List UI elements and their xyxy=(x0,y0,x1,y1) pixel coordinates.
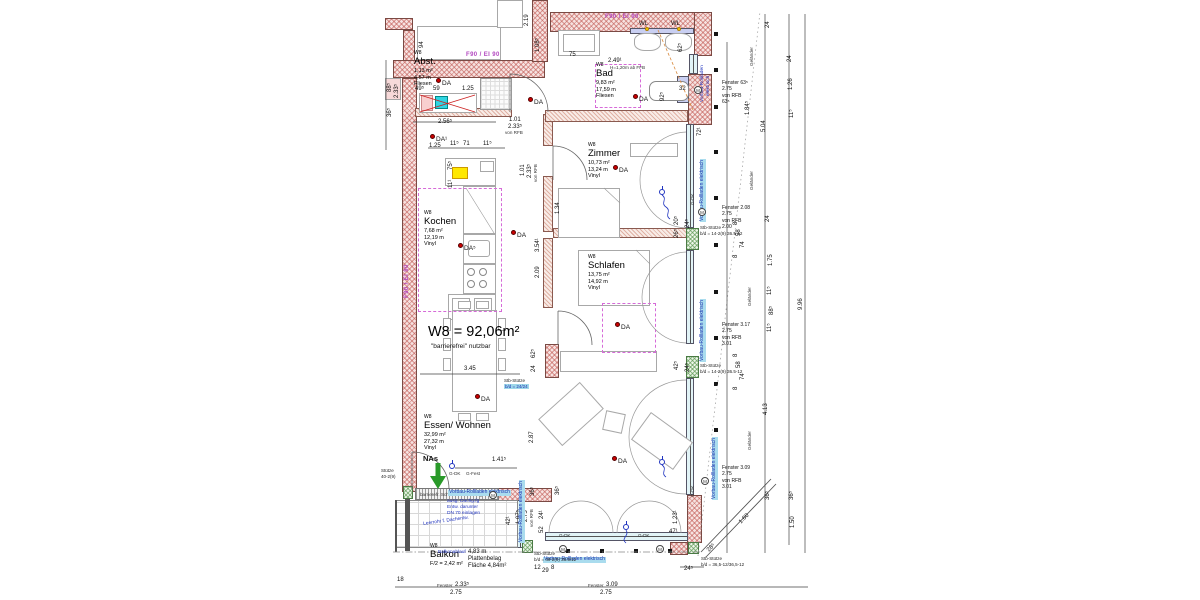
room-label: W8 Kochen 7,68 m² 12,19 m Vinyl xyxy=(424,210,456,248)
room-name: Abst. xyxy=(414,56,436,67)
motor-marker-icon: M xyxy=(698,208,706,216)
room-name: Schlafen xyxy=(588,260,625,271)
column-note: Stütze40-2(9) xyxy=(381,468,396,479)
dimension-label: 1.01 xyxy=(520,164,526,176)
cable-squiggles xyxy=(624,195,670,543)
dimension-label: 24⁵ xyxy=(684,566,693,572)
room-perimeter: 17,59 m xyxy=(596,87,616,94)
ceiling-outlet-marker: DA¹ xyxy=(430,134,447,143)
dimension-label: Fläche 4,84m² xyxy=(468,563,506,569)
window-dimension-block: Fenster 3.092.75von RFB3.01 xyxy=(722,465,750,490)
column-note: Stb-Stützeb/d = 14-2(9) 36.5-12 xyxy=(700,225,742,236)
dimension-label: Geländer xyxy=(750,171,755,190)
ceiling-outlet-marker: DA xyxy=(511,230,526,239)
dimension-label: 2.56⁵ xyxy=(438,119,452,125)
fire-rating-label: F90 / EI 90 xyxy=(605,14,639,20)
dimension-label: 24⁵ xyxy=(685,219,691,228)
dimension-label: von RFB xyxy=(534,164,539,182)
dimension-label: Geländer xyxy=(748,431,753,450)
dimension-label: Fenster xyxy=(437,584,453,589)
dimension-label: 72¹ xyxy=(697,127,703,136)
dimension-label: 74 xyxy=(740,241,746,248)
room-floor-finish: Vinyl xyxy=(424,445,491,452)
ceiling-outlet-marker: DA xyxy=(612,456,627,465)
ceiling-outlet-marker: DA xyxy=(475,394,490,403)
room-area: 13,75 m² xyxy=(588,272,625,279)
da-dot-icon xyxy=(436,78,441,83)
column-note-lines: Stb-Stützeb/d = 14-2(9) 36.5-12 xyxy=(700,363,742,374)
column-note-lines: Stb-Stützeb/d = 36,5-12/36,5-12 xyxy=(701,556,744,567)
utility-note: Vorbau-Rollladen xyxy=(700,65,706,102)
column-note: Stb-Stützeb/d = 14-2(9) 36.5-12 xyxy=(700,363,742,374)
ceiling-outlet-marker: DA xyxy=(436,78,451,87)
column-note-lines: Stb-Stützeb/d = 49-2(9) 36.5/12 xyxy=(534,551,576,562)
dimension-label: 29 xyxy=(542,568,549,574)
dimension-label: 52 xyxy=(539,526,545,533)
dimension-label: 20⁵ xyxy=(674,216,680,225)
electrical-outlet-icon xyxy=(659,459,665,465)
dimension-label: 11⁵ xyxy=(483,141,492,147)
room-area: 1,13 m² xyxy=(414,68,436,75)
dimension-label: 4.13 xyxy=(763,403,769,415)
dimension-label: 3.09 xyxy=(606,582,618,588)
room-area: 32,99 m² xyxy=(424,432,491,439)
da-label: DA xyxy=(618,458,627,465)
ceiling-outlet-marker: DA xyxy=(613,165,628,174)
utility-note: Balkonablauf xyxy=(438,550,466,556)
bed-fold-lines xyxy=(604,188,650,264)
floor-plan-canvas: W8 = 92,06m² "barrierefrei" nutzbar W8 A… xyxy=(0,0,1200,600)
dimension-label: 2.75 xyxy=(600,590,612,596)
da-label: DA xyxy=(639,96,648,103)
column-note-lines: Stütze40-2(9) xyxy=(381,468,396,479)
utility-note: Entw. darunter xyxy=(447,505,478,511)
dimension-label: G-DK xyxy=(449,472,460,477)
marker-letter: M xyxy=(658,547,662,552)
dimension-label: G-DK xyxy=(691,194,696,205)
dimension-label: 62⁵ xyxy=(531,349,537,358)
motor-marker-icon: M xyxy=(694,86,702,94)
dimension-label: 1.25 xyxy=(429,143,441,149)
da-label: DA¹ xyxy=(436,136,447,143)
room-label: W8 Zimmer 10,73 m² 13,24 m Vinyl xyxy=(588,142,620,180)
dimension-label: 3.54¹ xyxy=(535,238,541,252)
dimension-label: 2.09 xyxy=(535,266,541,278)
dimension-label: Fenster xyxy=(588,584,604,589)
dimension-label: 71 xyxy=(463,141,470,147)
dimension-label: 1.25 xyxy=(462,86,474,92)
room-floor-finish: Vinyl xyxy=(588,173,620,180)
utility-note: elektrisch xyxy=(706,76,712,96)
window-swings xyxy=(549,132,686,533)
dimension-label: 2.87 xyxy=(529,431,535,443)
room-name: Essen/ Wohnen xyxy=(424,420,491,431)
da-label: DA xyxy=(481,396,490,403)
da-label: DA xyxy=(621,324,630,331)
dimension-label: 24 xyxy=(787,55,793,62)
dimension-label: 18 xyxy=(397,577,404,583)
dimension-label: 88⁵ xyxy=(387,83,393,92)
apartment-subtitle: "barrierefrei" nutzbar xyxy=(431,344,491,351)
electrical-outlet-icon xyxy=(449,463,455,469)
dimension-label: 94 xyxy=(419,41,425,48)
da-label: DA xyxy=(619,167,628,174)
column-note: Stb-Stützeb/d = 49-2(9) 36.5/12 xyxy=(534,551,576,562)
dimension-label: 2.33⁵ xyxy=(455,582,469,588)
marker-letter: M xyxy=(703,479,707,484)
dimension-label: 2.33⁵ xyxy=(394,84,400,98)
dimension-label: G-Fest xyxy=(466,472,480,477)
dimension-label: WL xyxy=(671,21,680,27)
da-dot-icon xyxy=(612,456,617,461)
da-dot-icon xyxy=(458,243,463,248)
fire-rating-label: F90 / EI 90 xyxy=(404,264,410,298)
da-dot-icon xyxy=(430,134,435,139)
dimension-label: 36⁵ xyxy=(789,491,795,500)
window-dimension-block: Fenster 63⁵2.75von RFB63⁵ xyxy=(722,80,748,105)
da-dot-icon xyxy=(475,394,480,399)
motor-marker-icon: M xyxy=(489,491,497,499)
column-note-lines: Stb-Stützeb/d = 14-2(9) 36.5-12 xyxy=(700,225,742,236)
dimension-label: 3.45 xyxy=(464,366,476,372)
dimension-label: 1.34 xyxy=(555,202,561,214)
dimension-label: 92⁵ xyxy=(660,92,666,101)
dimension-label: 1.01 xyxy=(509,117,521,123)
dimension-label: 24 xyxy=(765,21,771,28)
dimension-label: 75 xyxy=(569,52,576,58)
dimension-label: 47¹ xyxy=(669,529,678,535)
dimension-label: Geländer xyxy=(750,47,755,66)
dimension-label: 24¹ xyxy=(539,510,545,519)
entry-arrow xyxy=(430,463,446,489)
room-floor-finish: Vinyl xyxy=(424,241,456,248)
da-label: DA xyxy=(534,99,543,106)
washer-cross xyxy=(420,95,475,112)
da-label: DA xyxy=(517,232,526,239)
dimension-label: 12 xyxy=(534,565,541,571)
room-perimeter: 27,32 m xyxy=(424,439,491,446)
window-dimension-lines: Fenster 63⁵2.75von RFB63⁵ xyxy=(722,80,748,105)
room-area: 9,83 m² xyxy=(596,80,616,87)
da-dot-icon xyxy=(528,97,533,102)
dimension-label: 2.49¹ xyxy=(608,58,622,64)
room-area: 7,68 m² xyxy=(424,228,456,235)
dimension-label: 11⁵ xyxy=(767,286,773,295)
motor-marker-icon: M xyxy=(656,545,664,553)
dimension-label: 11⁵ xyxy=(767,323,773,332)
window-dimension-lines: Fenster 3.092.75von RFB3.01 xyxy=(722,465,750,490)
roller-shutter-note: Vorbau-Rollladen elektrisch xyxy=(700,299,706,362)
dimension-label: 36⁵ xyxy=(765,491,771,500)
dimension-label: von RFB xyxy=(530,509,535,527)
dimension-label: 8 xyxy=(733,255,739,258)
da-label: DA⁵ xyxy=(464,245,476,252)
dimension-label: 24 xyxy=(531,365,537,372)
roller-shutter-note: Vorbau-Rollladen elektrisch xyxy=(519,480,525,543)
dimension-label: NAs xyxy=(423,455,438,463)
ceiling-outlet-marker: DA xyxy=(633,94,648,103)
electrical-outlet-icon xyxy=(659,189,665,195)
dimension-label: 36⁵ xyxy=(555,486,561,495)
dimension-label: 36⁵ xyxy=(387,108,393,117)
dimension-label: 11¹ xyxy=(448,180,454,188)
room-label: W8 Schlafen 13,75 m² 14,92 m Vinyl xyxy=(588,254,625,292)
dimension-label: G-DK xyxy=(691,486,696,497)
ceiling-outlet-marker: DA⁵ xyxy=(458,243,476,252)
dimension-label: 62⁵ xyxy=(678,43,684,52)
room-area: F/2 = 2,42 m² xyxy=(430,561,463,568)
ceiling-outlet-marker: DA xyxy=(528,97,543,106)
room-floor-finish: Vinyl xyxy=(588,285,625,292)
room-name: Zimmer xyxy=(588,148,620,159)
dimension-label: 26⁵ xyxy=(674,229,680,238)
dimension-label: G-DK xyxy=(638,534,649,539)
dimension-label: Plattenbelag xyxy=(468,556,501,562)
dimension-label: 1.08⁵ xyxy=(535,38,541,52)
dimension-label: 24⁵ xyxy=(685,363,691,372)
room-label: W8 Abst. 1,13 m² 4,57 m Fliesen xyxy=(414,50,436,88)
dimension-label: Geländer xyxy=(748,287,753,306)
dimension-label: 4,83 m xyxy=(468,549,486,555)
dimension-label: 42¹ xyxy=(506,516,512,525)
fridge-diagonal xyxy=(466,188,494,233)
dimension-label: 75⁵ xyxy=(448,161,454,170)
dimension-label: 24 xyxy=(765,215,771,222)
window-dimension-block: Fenster 3.172.75von RFB3.01 xyxy=(722,322,750,347)
da-label: DA xyxy=(442,80,451,87)
dimension-label: H=1,20m ab FFB xyxy=(610,66,645,71)
dimension-label: 1.41⁵ xyxy=(492,457,506,463)
dimension-label: 1.26 xyxy=(788,78,794,90)
dimension-label: 1.75 xyxy=(768,254,774,266)
da-dot-icon xyxy=(615,322,620,327)
dimension-label: 8 xyxy=(733,354,739,357)
motor-marker-icon: M xyxy=(559,545,567,553)
dimension-label: G-DK xyxy=(559,534,570,539)
dimension-label: 8 xyxy=(733,387,739,390)
marker-letter: M xyxy=(700,210,704,215)
room-floor-finish: Fliesen xyxy=(596,93,616,100)
dimension-label: 8 xyxy=(551,565,554,571)
da-dot-icon xyxy=(613,165,618,170)
motor-marker-icon: M xyxy=(701,477,709,485)
dimension-label: 11⁵ xyxy=(789,109,795,118)
room-label: W8 Essen/ Wohnen 32,99 m² 27,32 m Vinyl xyxy=(424,414,491,452)
roller-shutter-note: Vorbau-Rollladen elektrisch xyxy=(448,490,511,496)
da-dot-icon xyxy=(511,230,516,235)
dimension-label: 88⁵ xyxy=(769,306,775,315)
dimension-label: 74 xyxy=(740,373,746,380)
dimension-label: 5.04 xyxy=(761,120,767,132)
dimension-label: 1.50 xyxy=(790,516,796,528)
room-perimeter: 4,57 m xyxy=(414,75,436,82)
dimension-label: 32 xyxy=(679,86,686,92)
marker-letter: M xyxy=(696,88,700,93)
marker-letter: M xyxy=(561,547,565,552)
dimension-label: WL xyxy=(639,21,648,27)
column-note: Stb-Stützeb/d = 24/24 xyxy=(504,378,529,389)
dimension-label: 11⁵ xyxy=(450,141,459,147)
utility-note: ausg. Dachg.fg xyxy=(447,499,479,505)
dimension-label: 1.23¹ xyxy=(673,510,679,524)
room-perimeter: 14,92 m xyxy=(588,279,625,286)
dimension-label: 2.75 xyxy=(450,590,462,596)
dimension-label: 9.96 xyxy=(798,298,804,310)
ceiling-outlet-marker: DA xyxy=(615,322,630,331)
column-note: Stb-Stützeb/d = 36,5-12/36,5-12 xyxy=(701,556,744,567)
window-dimension-lines: Fenster 3.172.75von RFB3.01 xyxy=(722,322,750,347)
da-dot-icon xyxy=(633,94,638,99)
dimension-label: 2.19 xyxy=(524,14,530,26)
marker-letter: M xyxy=(491,493,495,498)
dimension-label: von RFB xyxy=(505,131,523,136)
dimension-label: 36⁵ xyxy=(530,487,536,496)
room-perimeter: 12,19 m xyxy=(424,235,456,242)
dimension-label: 49⁵ xyxy=(415,86,424,92)
apartment-title: W8 = 92,06m² xyxy=(428,325,519,340)
electrical-outlet-icon xyxy=(623,524,629,530)
column-note-lines: Stb-Stützeb/d = 24/24 xyxy=(504,378,529,389)
fire-rating-label: F90 / EI 90 xyxy=(466,52,500,58)
dimension-label: 42⁵ xyxy=(674,361,680,370)
room-name: Kochen xyxy=(424,216,456,227)
roller-shutter-note: Vorbau-Rollladen elektrisch xyxy=(712,437,718,500)
